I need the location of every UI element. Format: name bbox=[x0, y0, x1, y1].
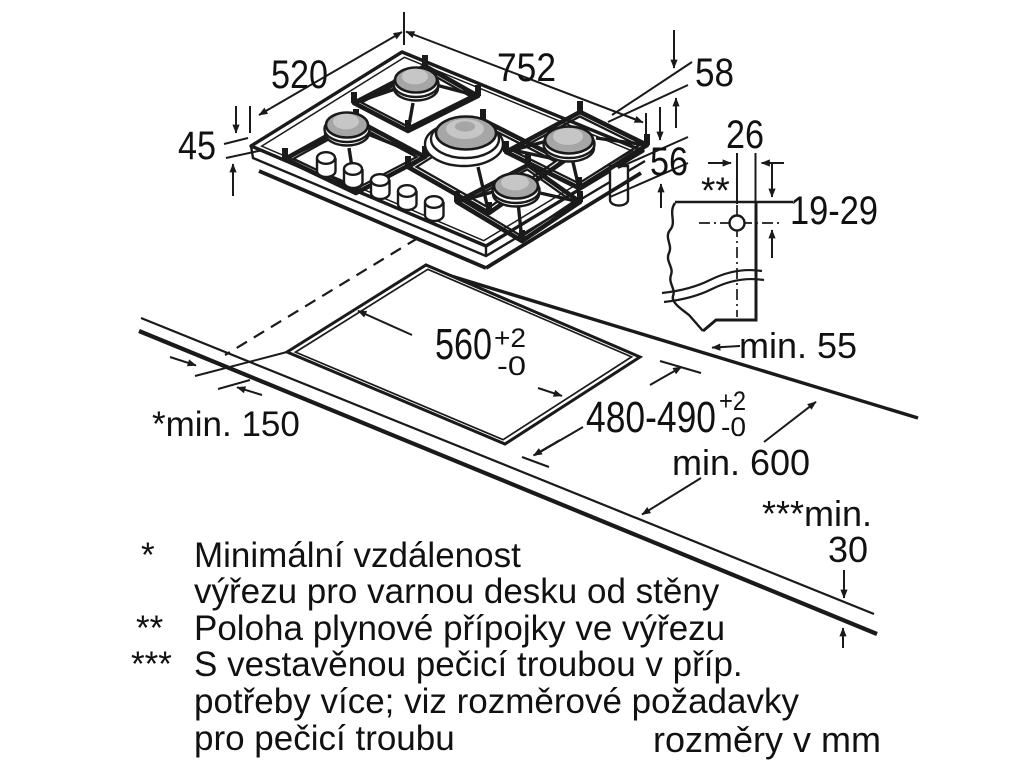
svg-text:-0: -0 bbox=[721, 412, 746, 442]
svg-text:19-29: 19-29 bbox=[790, 189, 878, 233]
svg-text:rozměry v mm: rozměry v mm bbox=[653, 719, 881, 760]
svg-text:S vestavěnou pečicí troubou v: S vestavěnou pečicí troubou v příp. bbox=[194, 645, 743, 684]
svg-text:**: ** bbox=[136, 609, 164, 648]
svg-text:**: ** bbox=[701, 170, 730, 211]
svg-text:Minimální vzdálenost: Minimální vzdálenost bbox=[194, 536, 521, 575]
svg-text:*min. 150: *min. 150 bbox=[152, 405, 300, 444]
svg-text:Poloha plynové přípojky ve výř: Poloha plynové přípojky ve výřezu bbox=[194, 609, 725, 648]
svg-text:480-490: 480-490 bbox=[586, 393, 716, 442]
svg-text:výřezu pro varnou desku od stě: výřezu pro varnou desku od stěny bbox=[194, 572, 720, 611]
svg-text:pro pečicí troubu: pro pečicí troubu bbox=[194, 719, 455, 758]
svg-text:520: 520 bbox=[271, 53, 328, 97]
svg-text:***min.: ***min. bbox=[762, 493, 872, 534]
svg-text:752: 752 bbox=[497, 46, 556, 90]
svg-text:30: 30 bbox=[828, 529, 868, 570]
svg-text:58: 58 bbox=[695, 51, 734, 95]
svg-text:-0: -0 bbox=[497, 351, 526, 381]
svg-text:26: 26 bbox=[726, 113, 764, 157]
svg-text:***: *** bbox=[131, 645, 172, 684]
svg-text:min. 600: min. 600 bbox=[672, 442, 810, 483]
svg-text:potřeby více; viz rozměrové po: potřeby více; viz rozměrové požadavky bbox=[194, 682, 799, 721]
svg-text:45: 45 bbox=[178, 124, 216, 168]
svg-text:56: 56 bbox=[650, 140, 688, 184]
svg-text:min. 55: min. 55 bbox=[739, 325, 857, 366]
svg-text:*: * bbox=[141, 536, 155, 575]
svg-text:560: 560 bbox=[435, 320, 492, 369]
svg-text:+2: +2 bbox=[494, 323, 526, 353]
